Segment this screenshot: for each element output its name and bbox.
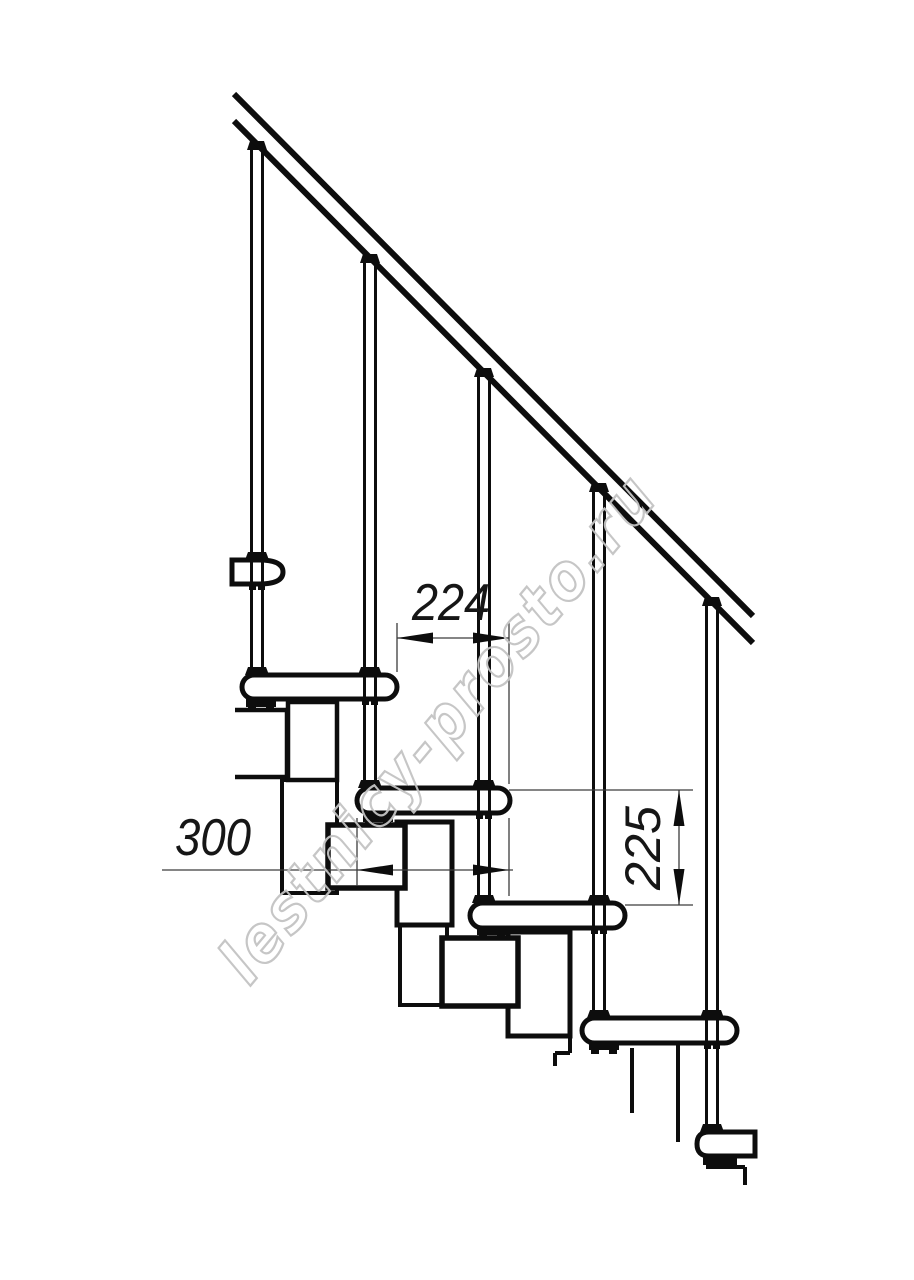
module-step6-cut-lines [713, 1167, 745, 1185]
baluster-5-foot [700, 1124, 724, 1132]
arrowhead-down [674, 869, 685, 905]
baluster-2 [358, 254, 382, 788]
staircase-drawing: 224 300 225 lestnicy-prosto.ru [0, 0, 914, 1280]
baluster-3-joint [472, 780, 496, 788]
baluster-1-joint [245, 552, 269, 560]
baluster-4-foot [587, 1010, 611, 1018]
baluster-2-joint [358, 667, 382, 675]
handrail [234, 94, 753, 643]
drawing-page: 224 300 225 lestnicy-prosto.ru [0, 0, 914, 1280]
tread-1 [232, 560, 283, 584]
handrail-top-line [234, 94, 753, 616]
dimension-rise: 225 [509, 790, 693, 905]
baluster-1 [245, 141, 269, 675]
baluster-5 [700, 597, 724, 1132]
tread-2 [242, 675, 397, 699]
module-step4-cut-lines [555, 1036, 570, 1066]
handrail-bottom-line [234, 121, 753, 643]
bracket-tread5 [589, 1043, 619, 1054]
dimension-label-rise: 225 [615, 806, 671, 891]
dimension-label-tread-depth: 300 [175, 809, 251, 867]
arrowhead-left [397, 633, 433, 644]
baluster-4-joint [587, 895, 611, 903]
tread-6 [697, 1132, 755, 1156]
arrowhead-up [674, 790, 685, 826]
baluster-1-foot [245, 667, 269, 675]
module-step2-side-box [235, 710, 287, 777]
module-step2-upper-box [288, 702, 337, 780]
baluster-3-foot [472, 895, 496, 903]
baluster-5-joint [700, 1010, 724, 1018]
module-step4-side-box [442, 938, 518, 1006]
tread-4 [470, 903, 625, 928]
tread-5 [582, 1018, 737, 1043]
